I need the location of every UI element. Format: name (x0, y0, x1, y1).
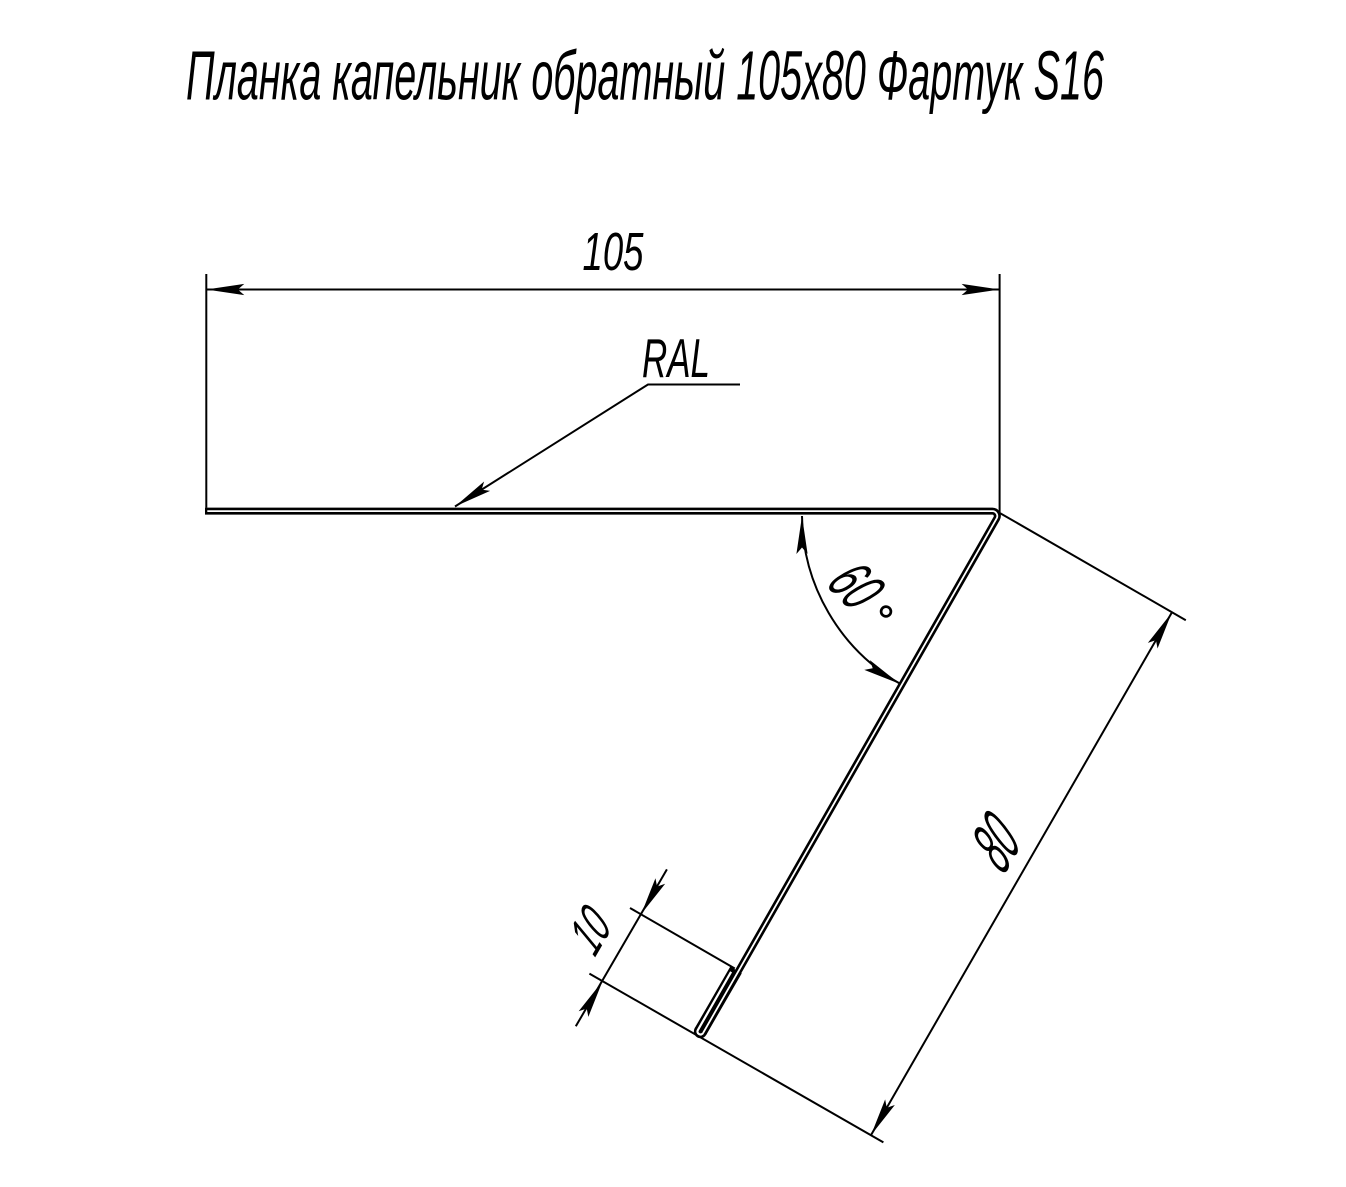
svg-text:Планка капельник обратный 105х: Планка капельник обратный 105х80 Фартук … (186, 37, 1104, 115)
svg-text:RAL: RAL (642, 327, 710, 389)
svg-text:105: 105 (583, 222, 645, 282)
